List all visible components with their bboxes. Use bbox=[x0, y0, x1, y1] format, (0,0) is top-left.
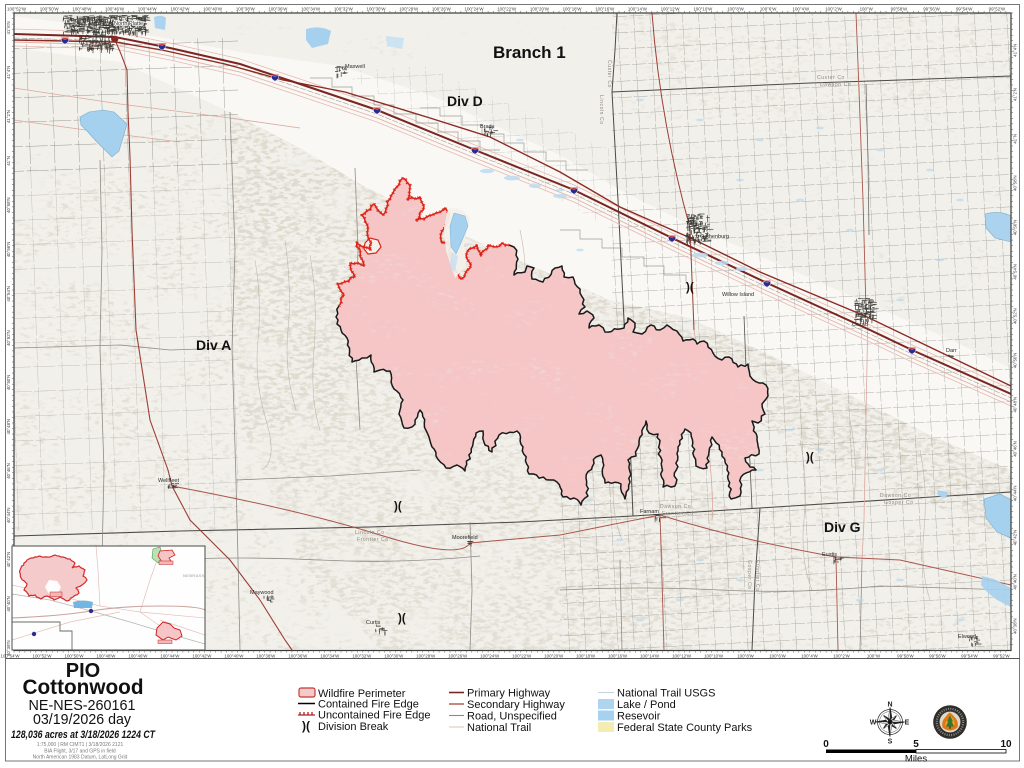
svg-text:99°56'W: 99°56'W bbox=[923, 7, 940, 12]
svg-text:100°12'W: 100°12'W bbox=[661, 7, 681, 12]
svg-text:40°44'N: 40°44'N bbox=[6, 508, 11, 524]
svg-text:Div A: Div A bbox=[196, 337, 231, 353]
svg-text:Gosper Co: Gosper Co bbox=[884, 500, 914, 506]
svg-text:40°58'N: 40°58'N bbox=[1013, 175, 1018, 191]
svg-text:Gothenburg: Gothenburg bbox=[700, 234, 729, 240]
svg-text:100°4'W: 100°4'W bbox=[793, 7, 810, 12]
svg-text:40°56'N: 40°56'N bbox=[6, 242, 11, 258]
svg-text:Div D: Div D bbox=[447, 93, 483, 109]
svg-text:Primary Highway: Primary Highway bbox=[467, 688, 551, 700]
svg-text:100°14'W: 100°14'W bbox=[640, 654, 660, 659]
svg-text:Wellfleet: Wellfleet bbox=[158, 478, 179, 484]
svg-text:)(: )( bbox=[398, 613, 406, 625]
svg-text:100°18'W: 100°18'W bbox=[576, 654, 596, 659]
svg-text:100°22'W: 100°22'W bbox=[497, 7, 517, 12]
svg-text:100°50'W: 100°50'W bbox=[40, 7, 60, 12]
svg-text:99°56'W: 99°56'W bbox=[929, 654, 946, 659]
svg-text:)(: )( bbox=[302, 719, 310, 733]
svg-text:Cozad: Cozad bbox=[852, 322, 868, 328]
svg-text:100°28'W: 100°28'W bbox=[399, 7, 419, 12]
svg-text:40°52'N: 40°52'N bbox=[1013, 308, 1018, 324]
svg-text:Resevoir: Resevoir bbox=[617, 711, 661, 723]
svg-text:41°N: 41°N bbox=[6, 156, 11, 166]
svg-text:5: 5 bbox=[913, 739, 919, 750]
svg-text:100°34'W: 100°34'W bbox=[301, 7, 321, 12]
svg-text:99°52'W: 99°52'W bbox=[993, 654, 1010, 659]
svg-text:100°18'W: 100°18'W bbox=[563, 7, 583, 12]
svg-text:Dawson Co: Dawson Co bbox=[660, 504, 691, 510]
svg-text:100°8'W: 100°8'W bbox=[727, 7, 744, 12]
svg-text:Road, Unspecified: Road, Unspecified bbox=[467, 711, 557, 723]
svg-text:100°2'W: 100°2'W bbox=[825, 7, 842, 12]
svg-text:40°42'N: 40°42'N bbox=[6, 552, 11, 568]
svg-text:99°52'W: 99°52'W bbox=[989, 7, 1006, 12]
svg-text:100°36'W: 100°36'W bbox=[288, 654, 308, 659]
svg-text:1:75,000 | RM CIMT1 | 3/18/20: 1:75,000 | RM CIMT1 | 3/18/2026 2121 bbox=[37, 742, 124, 748]
svg-text:National Trail: National Trail bbox=[467, 722, 531, 734]
svg-text:03/19/2026 day: 03/19/2026 day bbox=[33, 711, 131, 728]
svg-text:99°54'W: 99°54'W bbox=[961, 654, 978, 659]
svg-text:41°4'N: 41°4'N bbox=[1013, 44, 1018, 57]
svg-text:100°40'W: 100°40'W bbox=[203, 7, 223, 12]
svg-text:40°46'N: 40°46'N bbox=[6, 463, 11, 479]
svg-text:40°56'N: 40°56'N bbox=[1013, 220, 1018, 236]
svg-text:100°24'W: 100°24'W bbox=[465, 7, 485, 12]
svg-text:Frontier Co: Frontier Co bbox=[754, 560, 760, 592]
svg-text:Willow Island: Willow Island bbox=[722, 292, 754, 298]
svg-text:NEBRASKA: NEBRASKA bbox=[183, 573, 208, 578]
svg-text:100°46'W: 100°46'W bbox=[105, 7, 125, 12]
svg-text:100°30'W: 100°30'W bbox=[367, 7, 387, 12]
svg-text:Division Break: Division Break bbox=[318, 721, 389, 733]
svg-text:100°52'W: 100°52'W bbox=[7, 7, 27, 12]
svg-text:Custer Co: Custer Co bbox=[817, 75, 845, 81]
svg-text:Cottonwood: Cottonwood bbox=[23, 676, 144, 699]
svg-text:41°6'N: 41°6'N bbox=[6, 21, 11, 34]
svg-text:100°30'W: 100°30'W bbox=[384, 654, 404, 659]
svg-text:100°34'W: 100°34'W bbox=[320, 654, 340, 659]
svg-text:100°44'W: 100°44'W bbox=[138, 7, 158, 12]
svg-text:Farnam: Farnam bbox=[640, 509, 659, 515]
svg-text:40°42'N: 40°42'N bbox=[1013, 530, 1018, 546]
svg-text:North Platte: North Platte bbox=[114, 21, 143, 27]
svg-text:100°28'W: 100°28'W bbox=[416, 654, 436, 659]
svg-text:E: E bbox=[905, 720, 910, 727]
svg-text:40°48'N: 40°48'N bbox=[1013, 397, 1018, 413]
svg-text:Curtis: Curtis bbox=[366, 620, 381, 626]
svg-text:100°W: 100°W bbox=[860, 7, 874, 12]
svg-text:Uncontained Fire Edge: Uncontained Fire Edge bbox=[318, 710, 431, 722]
svg-text:40°46'N: 40°46'N bbox=[1013, 441, 1018, 457]
svg-text:40°50'N: 40°50'N bbox=[1013, 353, 1018, 369]
svg-text:Maywood: Maywood bbox=[250, 590, 274, 596]
svg-text:Moorefield: Moorefield bbox=[452, 535, 478, 541]
svg-text:40°40'N: 40°40'N bbox=[6, 596, 11, 612]
svg-text:100°38'W: 100°38'W bbox=[256, 654, 276, 659]
svg-text:100°6'W: 100°6'W bbox=[760, 7, 777, 12]
svg-text:40°54'N: 40°54'N bbox=[6, 286, 11, 302]
svg-text:Gosper Co: Gosper Co bbox=[746, 560, 752, 590]
svg-text:99°58'W: 99°58'W bbox=[891, 7, 908, 12]
svg-text:100°6'W: 100°6'W bbox=[769, 654, 786, 659]
svg-text:S: S bbox=[888, 739, 893, 746]
svg-text:Lincoln Co: Lincoln Co bbox=[598, 95, 604, 125]
svg-text:Secondary Highway: Secondary Highway bbox=[467, 699, 565, 711]
svg-text:Custer Co: Custer Co bbox=[606, 60, 612, 88]
svg-text:Darr: Darr bbox=[946, 348, 957, 354]
svg-text:100°20'W: 100°20'W bbox=[530, 7, 550, 12]
svg-text:Lincoln Co: Lincoln Co bbox=[355, 530, 385, 536]
svg-text:100°12'W: 100°12'W bbox=[672, 654, 692, 659]
svg-text:40°54'N: 40°54'N bbox=[1013, 264, 1018, 280]
svg-text:100°W: 100°W bbox=[867, 654, 881, 659]
svg-text:Branch 1: Branch 1 bbox=[493, 43, 566, 62]
svg-text:100°16'W: 100°16'W bbox=[608, 654, 628, 659]
svg-text:Lake / Pond: Lake / Pond bbox=[617, 699, 676, 711]
svg-text:40°44'N: 40°44'N bbox=[1013, 486, 1018, 502]
svg-text:North American 1983 Datum, Lat: North American 1983 Datum, LatLong Grid bbox=[33, 755, 128, 761]
svg-text:40°58'N: 40°58'N bbox=[6, 197, 11, 213]
svg-text:40°40'N: 40°40'N bbox=[1013, 574, 1018, 590]
svg-text:100°50'W: 100°50'W bbox=[65, 654, 85, 659]
svg-text:100°48'W: 100°48'W bbox=[72, 7, 92, 12]
svg-text:Eustis: Eustis bbox=[822, 552, 837, 558]
svg-text:100°4'W: 100°4'W bbox=[801, 654, 818, 659]
svg-text:Dawson Co: Dawson Co bbox=[820, 82, 851, 88]
svg-text:40°52'N: 40°52'N bbox=[6, 330, 11, 346]
svg-text:100°44'W: 100°44'W bbox=[160, 654, 180, 659]
svg-text:Miles: Miles bbox=[905, 754, 927, 765]
svg-text:40°50'N: 40°50'N bbox=[6, 375, 11, 391]
svg-text:Div G: Div G bbox=[824, 519, 861, 535]
svg-text:100°20'W: 100°20'W bbox=[544, 654, 564, 659]
svg-text:100°22'W: 100°22'W bbox=[512, 654, 532, 659]
svg-text:100°36'W: 100°36'W bbox=[268, 7, 288, 12]
svg-text:41°2'N: 41°2'N bbox=[6, 110, 11, 123]
svg-text:)(: )( bbox=[686, 282, 694, 294]
svg-text:100°40'W: 100°40'W bbox=[224, 654, 244, 659]
svg-text:100°10'W: 100°10'W bbox=[693, 7, 713, 12]
svg-text:100°38'W: 100°38'W bbox=[236, 7, 256, 12]
svg-text:100°26'W: 100°26'W bbox=[448, 654, 468, 659]
svg-text:National Trail USGS: National Trail USGS bbox=[617, 688, 715, 700]
svg-text:100°32'W: 100°32'W bbox=[334, 7, 354, 12]
svg-text:Federal State County Parks: Federal State County Parks bbox=[617, 722, 753, 734]
svg-text:100°46'W: 100°46'W bbox=[128, 654, 148, 659]
svg-text:100°52'W: 100°52'W bbox=[33, 654, 53, 659]
svg-text:99°58'W: 99°58'W bbox=[897, 654, 914, 659]
svg-text:Frontier Co: Frontier Co bbox=[662, 511, 694, 517]
svg-text:40°38'N: 40°38'N bbox=[1013, 618, 1018, 634]
svg-text:0: 0 bbox=[823, 739, 829, 750]
svg-text:)(: )( bbox=[806, 452, 814, 464]
svg-text:10: 10 bbox=[1000, 739, 1012, 750]
svg-text:N: N bbox=[887, 702, 892, 709]
svg-text:100°10'W: 100°10'W bbox=[704, 654, 724, 659]
svg-text:100°42'W: 100°42'W bbox=[192, 654, 212, 659]
svg-text:W: W bbox=[870, 720, 877, 727]
svg-text:100°26'W: 100°26'W bbox=[432, 7, 452, 12]
svg-text:41°2'N: 41°2'N bbox=[1013, 88, 1018, 101]
svg-text:100°24'W: 100°24'W bbox=[480, 654, 500, 659]
svg-text:100°32'W: 100°32'W bbox=[352, 654, 372, 659]
svg-text:100°8'W: 100°8'W bbox=[737, 654, 754, 659]
svg-text:100°48'W: 100°48'W bbox=[96, 654, 116, 659]
svg-text:100°16'W: 100°16'W bbox=[595, 7, 615, 12]
svg-text:40°48'N: 40°48'N bbox=[6, 419, 11, 435]
svg-text:)(: )( bbox=[394, 501, 402, 513]
svg-text:100°14'W: 100°14'W bbox=[628, 7, 648, 12]
svg-text:Frontier Co: Frontier Co bbox=[357, 537, 389, 543]
svg-text:Elwood: Elwood bbox=[958, 634, 976, 640]
svg-text:Maxwell: Maxwell bbox=[345, 64, 365, 70]
svg-text:Brady: Brady bbox=[480, 124, 495, 130]
svg-text:41°N: 41°N bbox=[1013, 134, 1018, 144]
svg-text:100°2'W: 100°2'W bbox=[833, 654, 850, 659]
svg-text:41°4'N: 41°4'N bbox=[6, 66, 11, 79]
svg-text:99°54'W: 99°54'W bbox=[956, 7, 973, 12]
svg-text:100°42'W: 100°42'W bbox=[170, 7, 190, 12]
svg-text:128,036 acres at 3/18/2026 122: 128,036 acres at 3/18/2026 1224 CT bbox=[11, 729, 156, 741]
svg-text:40°38'N: 40°38'N bbox=[6, 640, 11, 656]
svg-text:Dawson Co: Dawson Co bbox=[880, 493, 911, 499]
